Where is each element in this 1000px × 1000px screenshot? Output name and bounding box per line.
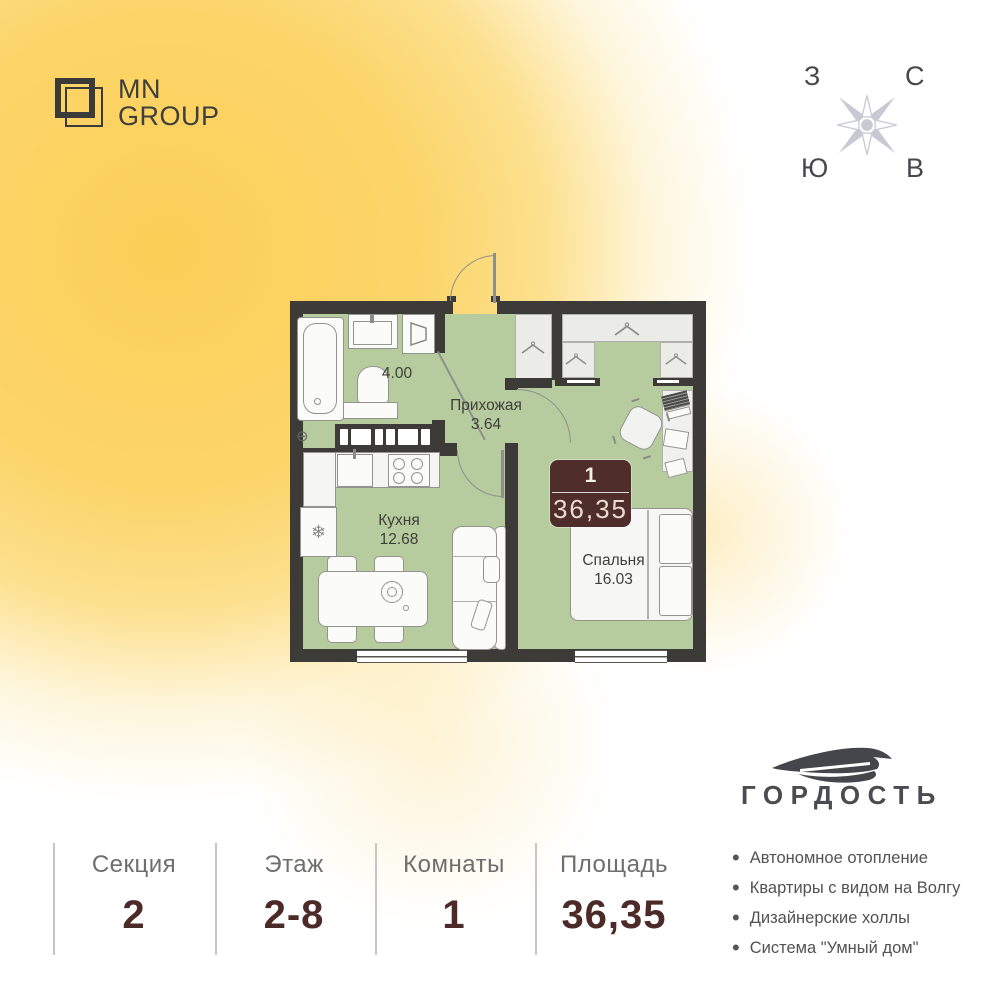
compass-star-icon — [822, 80, 912, 170]
area-label: Площадь — [535, 851, 693, 879]
bedroom-name-label: Спальня — [566, 552, 661, 570]
bullet-icon: • — [732, 905, 740, 931]
floor-value: 2-8 — [215, 893, 373, 938]
stove — [388, 454, 430, 487]
shaft-cell — [386, 429, 395, 445]
kitchen-sink — [337, 454, 373, 487]
shaft-cell — [398, 429, 418, 445]
bed-pillow — [659, 514, 692, 564]
hanger-icon — [520, 341, 546, 354]
bathroom-sink — [348, 314, 398, 349]
shaft-cell — [375, 429, 383, 445]
wall-top-left — [290, 301, 453, 314]
sofa-pillow — [483, 556, 500, 583]
summary-col-rooms: Комнаты 1 — [375, 843, 533, 938]
wall-right — [693, 301, 706, 662]
bed-pillow — [659, 566, 692, 616]
floor-label: Этаж — [215, 851, 373, 879]
feature-item: • Автономное отопление — [732, 843, 992, 873]
fridge: ❄ — [300, 507, 337, 557]
papers — [663, 428, 690, 450]
area-value: 36,35 — [535, 893, 693, 938]
rooms-value: 1 — [375, 893, 533, 938]
sink-faucet — [370, 315, 374, 323]
brand-line2: GROUP — [118, 103, 220, 130]
kitchen-window — [357, 650, 467, 663]
closet-door-sill — [657, 380, 679, 383]
burner — [393, 472, 405, 484]
kitchen-counter-left — [303, 452, 336, 507]
bullet-icon: • — [732, 935, 740, 961]
summary-col-area: Площадь 36,35 — [535, 843, 693, 938]
rooms-label: Комнаты — [375, 851, 533, 879]
hanger-icon — [612, 322, 642, 336]
burner — [393, 458, 405, 470]
section-label: Секция — [55, 851, 213, 879]
flat-card: MN GROUP З С Ю В — [0, 0, 1000, 1000]
hanger-icon — [564, 353, 588, 365]
toilet-tank — [343, 402, 398, 419]
sofa-seats — [452, 526, 497, 650]
wall-living-bedroom-divider — [505, 443, 518, 662]
bedroom-window — [575, 650, 667, 663]
wall-closet-divider — [552, 314, 562, 380]
burner — [411, 472, 423, 484]
logo-square-outline-front — [55, 78, 95, 118]
rooms-area-badge: 1 36,35 — [550, 460, 631, 527]
closet-door-sill — [567, 380, 595, 383]
badge-total-area: 36,35 — [550, 493, 631, 525]
mn-group-logo-text: MN GROUP — [118, 76, 220, 130]
brand-line1: MN — [118, 76, 220, 103]
section-value: 2 — [55, 893, 213, 938]
feature-text: Квартиры с видом на Волгу — [750, 879, 961, 898]
bathtub — [297, 317, 344, 421]
swallow-bird-icon — [770, 742, 898, 784]
fridge-snowflake-icon: ❄ — [311, 522, 326, 542]
place-setting-icon — [387, 587, 397, 597]
mn-group-logo-icon — [55, 78, 119, 140]
badge-rooms-count: 1 — [550, 460, 631, 492]
bathroom-area-label: 4.00 — [355, 365, 439, 383]
bathtub-drain — [314, 398, 321, 405]
ventilation-shaft — [335, 424, 436, 450]
kitchen-area-label: 12.68 — [353, 531, 445, 549]
radiator-icon: ⊖ — [296, 427, 309, 445]
feature-text: Дизайнерские холлы — [750, 909, 910, 928]
wall-top-right — [497, 301, 706, 314]
shaft-cell — [421, 429, 430, 445]
compass-west-label: З — [804, 61, 820, 92]
burner — [411, 458, 423, 470]
dining-table — [318, 571, 428, 627]
summary-col-section: Секция 2 — [55, 843, 213, 938]
kitchen-name-label: Кухня — [353, 512, 445, 530]
washing-machine — [402, 314, 435, 354]
wall-under-closet-mid — [555, 378, 600, 386]
place-setting-icon — [403, 605, 409, 611]
wall-under-closet-right — [653, 378, 693, 386]
kitchen-faucet — [353, 449, 356, 459]
feature-item: • Квартиры с видом на Волгу — [732, 873, 992, 903]
bullet-icon: • — [732, 845, 740, 871]
wall-under-hall-closet — [510, 378, 552, 388]
developer-name: ГОРДОСТЬ — [741, 780, 981, 811]
washer-drum-icon — [409, 321, 429, 347]
hallway-area-label: 3.64 — [438, 416, 534, 434]
shaft-cell — [340, 429, 348, 445]
hanger-icon — [664, 353, 688, 365]
sink-basin — [353, 321, 392, 345]
feature-text: Система "Умный дом" — [750, 939, 919, 958]
feature-text: Автономное отопление — [750, 849, 928, 868]
feature-item: • Система "Умный дом" — [732, 933, 992, 963]
shaft-cell — [351, 429, 371, 445]
bullet-icon: • — [732, 875, 740, 901]
feature-item: • Дизайнерские холлы — [732, 903, 992, 933]
bedroom-area-label: 16.03 — [566, 571, 661, 589]
hallway-name-label: Прихожая — [438, 397, 534, 415]
summary-col-floor: Этаж 2-8 — [215, 843, 373, 938]
